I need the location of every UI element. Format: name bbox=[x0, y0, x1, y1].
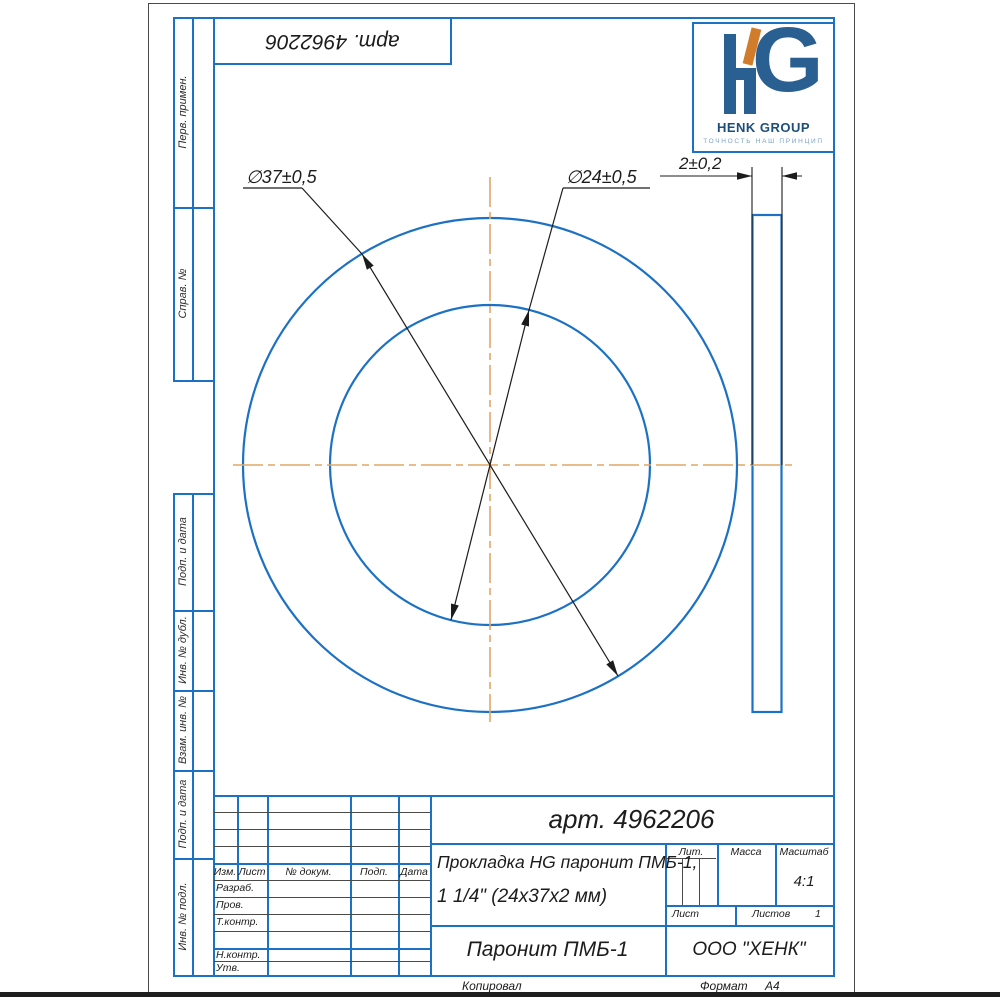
top-article-stamp: арт. 4962206 bbox=[215, 19, 450, 63]
col-header-list: Лист bbox=[237, 864, 267, 880]
grid-line bbox=[213, 63, 452, 65]
tb-article: арт. 4962206 bbox=[430, 795, 833, 843]
row-prov: Пров. bbox=[216, 899, 244, 911]
strip-label-sprav-no: Справ. № bbox=[174, 207, 192, 380]
grid-line bbox=[699, 859, 700, 905]
row-tkontr: Т.контр. bbox=[216, 916, 258, 928]
logo-box: G HENK GROUP ТОЧНОСТЬ НАШ ПРИНЦИП bbox=[692, 22, 835, 153]
logo-letter-g: G bbox=[752, 14, 824, 106]
footer-format-value: А4 bbox=[765, 979, 780, 993]
row-razrab: Разраб. bbox=[216, 882, 254, 894]
grid-line bbox=[450, 17, 452, 65]
tb-material: Паронит ПМБ-1 bbox=[430, 925, 665, 975]
grid-line bbox=[192, 493, 194, 975]
tb-company: ООО "ХЕНК" bbox=[665, 925, 833, 975]
strip-label-podp-data-1: Подп. и дата bbox=[174, 493, 192, 610]
drawing-sheet: ∅37±0,5 ∅24±0,5 2±0,2 арт. 4962206 Перв.… bbox=[0, 0, 1000, 1000]
frame-line bbox=[173, 975, 835, 977]
tb-listov-value: 1 bbox=[815, 908, 821, 920]
grid-line bbox=[173, 380, 215, 382]
grid-line bbox=[214, 914, 430, 915]
footer-format-label: Формат bbox=[700, 979, 748, 993]
tb-massa-header: Масса bbox=[717, 845, 775, 858]
grid-line bbox=[214, 897, 430, 898]
row-utv: Утв. bbox=[216, 962, 240, 974]
strip-label-perv-primen: Перв. примен. bbox=[174, 17, 192, 207]
hg-logo-icon: G bbox=[714, 26, 814, 116]
tb-masshtab-header: Масштаб bbox=[775, 845, 833, 858]
tb-scale-value: 4:1 bbox=[775, 860, 833, 903]
col-header-doc: № докум. bbox=[267, 864, 350, 880]
grid-line bbox=[214, 829, 430, 830]
grid-line bbox=[665, 905, 833, 907]
tb-name-line1: Прокладка HG паронит ПМБ-1, bbox=[437, 852, 697, 873]
grid-line bbox=[214, 880, 430, 881]
footer-copy: Копировал bbox=[462, 979, 522, 993]
strip-label-inv-dubl: Инв. № дубл. bbox=[174, 610, 192, 690]
tb-name-line2: 1 1/4" (24х37х2 мм) bbox=[437, 886, 607, 908]
grid-line bbox=[735, 905, 737, 925]
col-header-data: Дата bbox=[398, 864, 430, 880]
grid-line bbox=[214, 846, 430, 847]
grid-line bbox=[192, 17, 194, 382]
strip-label-podp-data-2: Подп. и дата bbox=[174, 770, 192, 858]
frame-line bbox=[213, 17, 215, 977]
col-header-podp: Подп. bbox=[350, 864, 398, 880]
grid-line bbox=[214, 931, 430, 932]
grid-line bbox=[350, 795, 352, 975]
col-header-izm: Изм. bbox=[213, 864, 237, 880]
logo-tagline: ТОЧНОСТЬ НАШ ПРИНЦИП bbox=[694, 138, 833, 145]
logo-name: HENK GROUP bbox=[694, 120, 833, 135]
row-nkontr: Н.контр. bbox=[216, 949, 260, 961]
grid-line bbox=[267, 795, 269, 975]
grid-line bbox=[398, 795, 400, 975]
tb-lit-header: Лит. bbox=[665, 845, 717, 858]
tb-listov-label: Листов bbox=[752, 908, 790, 920]
strip-label-vzam-inv: Взам. инв. № bbox=[174, 690, 192, 770]
strip-label-inv-podl: Инв. № подл. bbox=[174, 858, 192, 975]
tb-list-label: Лист bbox=[672, 908, 699, 920]
grid-line bbox=[214, 961, 430, 962]
frame-line bbox=[833, 17, 835, 977]
grid-line bbox=[214, 812, 430, 813]
